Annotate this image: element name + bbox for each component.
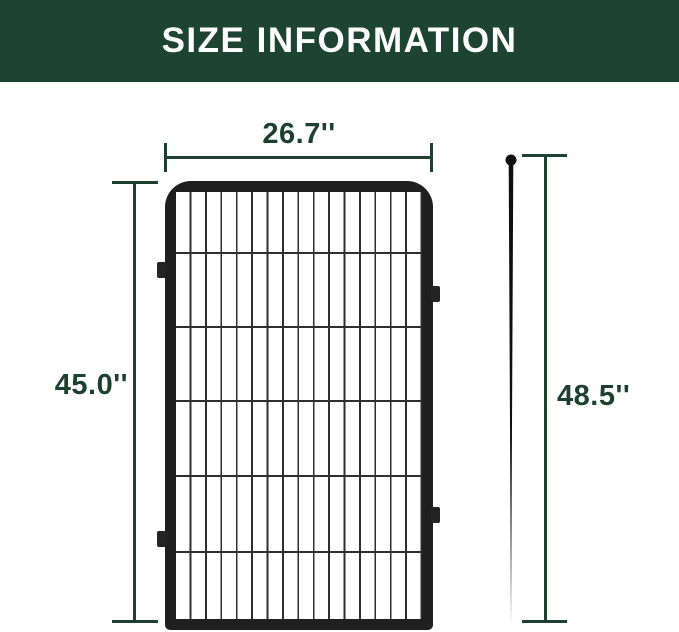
header-bar: SIZE INFORMATION bbox=[0, 0, 679, 82]
fence-panel bbox=[165, 181, 433, 630]
panel-width-tick-left bbox=[164, 143, 167, 172]
connector-tab-right-top bbox=[431, 286, 440, 302]
stake-height-tick-bottom bbox=[522, 620, 567, 623]
stake-height-dimension-line bbox=[544, 156, 547, 623]
panel-width-tick-right bbox=[430, 143, 433, 172]
size-information-infographic: SIZE INFORMATION 26.7'' 45.0'' 48.5'' bbox=[0, 0, 679, 632]
panel-height-tick-top bbox=[112, 181, 158, 184]
connector-tab-right-bottom bbox=[431, 507, 440, 523]
panel-height-tick-bottom bbox=[112, 620, 158, 623]
stake-height-tick-top bbox=[522, 154, 567, 157]
page-title: SIZE INFORMATION bbox=[162, 21, 518, 61]
panel-width-label: 26.7'' bbox=[219, 118, 379, 151]
panel-height-dimension-line bbox=[133, 183, 136, 623]
panel-height-label: 45.0'' bbox=[28, 369, 128, 402]
connector-tab-left-top bbox=[157, 262, 166, 278]
stake-height-label: 48.5'' bbox=[557, 380, 630, 413]
panel-width-dimension-line bbox=[166, 156, 432, 159]
connector-tab-left-bottom bbox=[157, 531, 166, 547]
fence-panel-wire-grid bbox=[176, 192, 422, 619]
ground-stake-icon bbox=[498, 149, 524, 631]
